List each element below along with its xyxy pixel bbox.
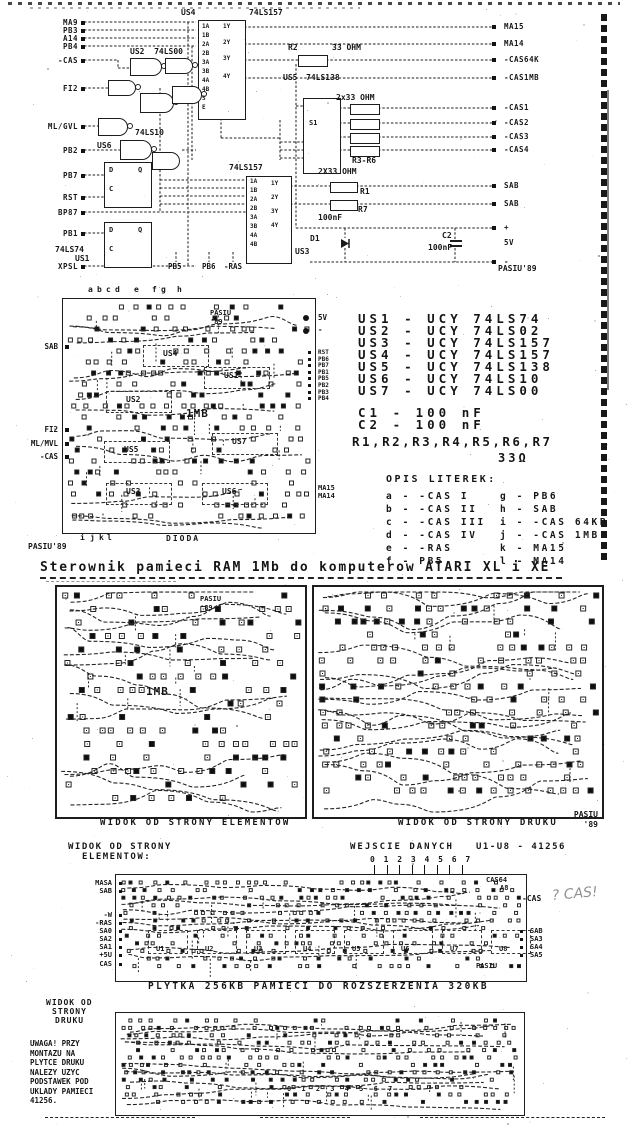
schematic-right-pin — [492, 226, 496, 230]
us4-pin-label: 1A — [202, 24, 209, 30]
gate-inverter-bubble — [135, 84, 141, 90]
schematic-left-pin — [81, 265, 85, 269]
scan-speckle — [290, 991, 291, 992]
legend-left-item: e - -RAS — [386, 544, 453, 554]
memory-edge-pin — [119, 930, 122, 933]
schematic-right-label: -CAS1 — [504, 104, 529, 112]
scan-speckle — [60, 27, 61, 28]
ff-pin-c: C — [109, 186, 113, 193]
us4-pin-label: 4A — [202, 78, 209, 84]
schematic-left-pin — [81, 87, 85, 91]
schematic-right-label: + — [504, 224, 509, 232]
memory-left-label: MASA — [95, 880, 112, 887]
schematic-left-pin — [81, 21, 85, 25]
memory-left-label: SA0 — [99, 928, 112, 935]
schematic-right-pin — [492, 106, 496, 110]
schematic-right-label: MA14 — [504, 40, 524, 48]
memory-data-stub — [412, 865, 413, 874]
scan-speckle — [524, 1109, 525, 1110]
scan-speckle — [597, 800, 598, 801]
schematic-right-label: - — [504, 258, 509, 266]
scan-speckle — [16, 425, 17, 426]
pcb-pads — [314, 587, 602, 817]
board1-dioda-label: DIODA — [166, 535, 200, 543]
schematic-right-pin — [492, 260, 496, 264]
scan-speckle — [327, 294, 328, 295]
scan-speckle — [463, 245, 464, 246]
us4-pin-label: 4B — [202, 87, 209, 93]
schematic-left-label: PB1 — [63, 230, 78, 238]
schematic-left-pin — [81, 211, 85, 215]
scan-speckle — [128, 310, 130, 312]
memory-right-label: SA5 — [530, 952, 543, 959]
r36-label: R3-R6 — [352, 157, 376, 165]
board1-edge-pin — [308, 391, 311, 394]
logic-gate — [152, 152, 180, 170]
schematic-bottom-pin-label: -RAS — [224, 263, 242, 271]
scan-speckle — [469, 697, 471, 699]
bottom-dash — [45, 1117, 195, 1118]
us3-pin-label: 3B — [250, 224, 257, 230]
bottom-note-line: PLYTCE DRUKU — [30, 1059, 84, 1067]
legend-right-item: l - MA14 — [500, 557, 567, 567]
memory-edge-pin — [119, 938, 122, 941]
board1-top-letter: b — [97, 286, 102, 294]
page-title: Sterownik pamieci RAM 1Mb do komputerow … — [40, 561, 550, 574]
scan-speckle — [232, 903, 233, 904]
scan-speckle — [488, 504, 489, 505]
us4-name: US4 — [181, 9, 195, 17]
solder-side-board — [115, 1012, 525, 1116]
scan-speckle — [280, 89, 281, 90]
scan-speckle — [144, 196, 145, 197]
schematic-left-pin — [81, 37, 85, 41]
viewL-size-label: 1MB — [146, 686, 169, 697]
viewR-caption: WIDOK OD STRONY DRUKU — [398, 819, 558, 828]
scan-speckle — [626, 1058, 627, 1059]
r36-value: 2x33 OHM — [336, 94, 375, 102]
schematic-left-label: PB7 — [63, 172, 78, 180]
scan-speckle — [367, 581, 368, 582]
scan-speckle — [272, 1107, 273, 1108]
schematic-bottom-pin-label: PB6 — [202, 263, 216, 271]
memory-data-stub — [387, 865, 388, 874]
us3-pin-label: 4A — [250, 233, 257, 239]
board1-ic-outline — [104, 441, 170, 463]
memory-left-label: -W — [104, 912, 112, 919]
scan-speckle — [470, 454, 471, 455]
board1-signature: PASIU'89 — [28, 543, 67, 551]
scan-speckle — [480, 886, 481, 887]
ff-pin-d: D — [109, 227, 113, 234]
schematic-bottom-pin-label: PB5 — [168, 263, 182, 271]
parts-res-value: 33Ω — [498, 452, 529, 464]
scan-speckle — [587, 992, 589, 994]
memory-chip-outline — [491, 930, 531, 954]
scan-speckle — [402, 574, 403, 575]
bottom-note-line: UKLADY PAMIECI — [30, 1088, 93, 1096]
us3-pin-label: 1A — [250, 179, 257, 185]
bottom-note-line: MONTAZU NA — [30, 1050, 75, 1058]
scan-speckle — [499, 937, 500, 938]
memory-left-label: SA2 — [99, 936, 112, 943]
board1-bottom-letter: k — [99, 534, 104, 542]
scan-speckle — [458, 790, 460, 792]
board1-top-letter: e — [134, 286, 139, 294]
scan-speckle — [228, 815, 229, 816]
scan-speckle — [373, 528, 374, 529]
board1-ic-outline — [212, 433, 278, 455]
pcb-view-solder-side — [312, 585, 604, 819]
r17-value: 2X33 OHM — [318, 168, 357, 176]
board1-inner-signature: PASIU '89 — [210, 309, 244, 327]
board1-edge-pin — [308, 397, 311, 400]
bottom-view-label1: WIDOK OD — [46, 999, 93, 1007]
c2-label: C2 — [442, 232, 452, 240]
schematic-area: US4 74LS157 74LS157 US3 US5 74LS138 S1 U… — [0, 0, 632, 292]
scan-speckle — [543, 1083, 544, 1084]
us4-part: 74LS157 — [249, 9, 283, 17]
title-underline — [40, 577, 562, 579]
board1-right-label: - — [318, 326, 323, 334]
bottom-note-line: PODSTAWEK POD — [30, 1078, 89, 1086]
memory-header-right: U1-U8 - 41256 — [476, 843, 566, 852]
c1-value: 100nF — [318, 214, 342, 222]
board1-right-label: MA15 — [318, 485, 335, 492]
scan-speckle — [336, 297, 337, 298]
board1-bottom-letter: l — [107, 534, 112, 542]
board1-right-label: MA14 — [318, 493, 335, 500]
scan-speckle — [160, 838, 161, 839]
schematic-left-label: FI2 — [63, 85, 78, 93]
scan-speckle — [394, 287, 395, 288]
scan-speckle — [623, 761, 624, 762]
us3-pin-label: 2B — [250, 206, 257, 212]
schematic-right-label: 5V — [504, 239, 514, 247]
memory-chip-outline — [344, 930, 384, 954]
bottom-view-label2: STRONY — [52, 1008, 87, 1016]
scan-speckle — [428, 346, 429, 347]
schematic-right-label: -CAS64K — [504, 56, 539, 64]
scan-speckle — [548, 318, 549, 319]
scan-speckle — [327, 102, 329, 104]
us4-pin-label: 3A — [202, 60, 209, 66]
d1-label: D1 — [310, 235, 320, 243]
scan-speckle — [160, 1109, 161, 1110]
scan-speckle — [502, 760, 504, 762]
board1-edge-pin — [308, 371, 311, 374]
board1-left-label: -CAS — [40, 453, 58, 461]
scan-speckle — [389, 294, 390, 295]
scan-speckle — [33, 104, 34, 105]
legend-left-item: b - -CAS II — [386, 505, 478, 515]
schematic-right-pin — [492, 184, 496, 188]
memory-right-label: SA4 — [530, 944, 543, 951]
memory-caption: PLYTKA 256KB PAMIECI DO ROZSZERZENIA 320… — [148, 982, 489, 992]
r2-label: R2 — [288, 44, 298, 52]
us3-pin-label: 3A — [250, 215, 257, 221]
board1-top-letter: a — [88, 286, 93, 294]
pcb-pads — [116, 875, 526, 981]
schematic-left-pin — [81, 125, 85, 129]
scan-speckle — [136, 401, 137, 402]
board1-top-letter: d — [115, 286, 120, 294]
logic-gate — [140, 93, 174, 113]
scan-speckle — [565, 854, 566, 855]
board1-top-letter: c — [106, 286, 111, 294]
ff-pin-q: Q — [138, 227, 142, 234]
scan-speckle — [608, 459, 609, 460]
memory-edge-pin — [119, 882, 122, 885]
board1-left-label: SAB — [44, 343, 58, 351]
us3-name: US3 — [295, 248, 309, 256]
logic-gate — [130, 58, 162, 76]
memory-edge-pin — [520, 954, 523, 957]
logic-gate — [120, 140, 152, 160]
board1-power-pad — [303, 328, 309, 334]
memory-chip-outline — [393, 930, 433, 954]
bottom-note-line: NALEZY UZYC — [30, 1069, 80, 1077]
us3-pin-label: 1Y — [271, 181, 278, 187]
scan-speckle — [61, 907, 62, 908]
schematic-right-label: -CAS1MB — [504, 74, 539, 82]
scan-speckle — [12, 1061, 13, 1062]
us5-part: 74LS138 — [306, 74, 340, 82]
scan-speckle — [26, 981, 27, 982]
board1-ic-outline — [106, 483, 172, 505]
schematic-left-label: -CAS — [58, 57, 78, 65]
scan-speckle — [293, 294, 294, 295]
scan-speckle — [414, 1006, 415, 1007]
scan-speckle — [478, 812, 479, 813]
us4-pin-label: 1B — [202, 33, 209, 39]
schematic-left-label: BP87 — [58, 209, 78, 217]
scan-speckle — [294, 524, 295, 525]
scan-speckle — [573, 781, 574, 782]
logic-gate — [165, 58, 193, 74]
scan-speckle — [318, 450, 319, 451]
memory-chip-outline — [442, 930, 482, 954]
us3-part: 74LS157 — [229, 164, 263, 172]
scan-speckle — [529, 1121, 531, 1123]
scan-speckle — [12, 781, 13, 782]
memory-edge-pin — [119, 914, 122, 917]
scan-speckle — [473, 1078, 474, 1079]
scan-speckle — [595, 370, 596, 371]
logic-gate — [108, 80, 136, 96]
bottom-digits: 0 1 2 3 4 5 6 7 — [287, 1086, 395, 1093]
scan-speckle — [255, 705, 256, 706]
scan-speckle — [236, 725, 238, 727]
logic-gate — [98, 118, 128, 136]
scan-speckle — [7, 776, 8, 777]
memory-header-center: WEJSCIE DANYCH — [350, 843, 454, 852]
memory-left-label: -RAS — [95, 920, 112, 927]
schematic-left-pin — [81, 29, 85, 33]
schematic-signature: PASIU'89 — [498, 265, 537, 273]
memory-inner-signature: PASIU — [476, 963, 497, 970]
schematic-right-pin — [492, 148, 496, 152]
scan-speckle — [332, 594, 333, 595]
memory-left-label: SAB — [99, 888, 112, 895]
scan-speckle — [70, 863, 71, 864]
us5-name: US5 — [283, 74, 297, 82]
schematic-right-pin — [492, 42, 496, 46]
memory-header-digits: 0 1 2 3 4 5 6 7 — [370, 856, 472, 864]
scan-speckle — [594, 320, 596, 322]
schematic-left-pin — [81, 232, 85, 236]
us4-pin-label: 3Y — [223, 56, 230, 62]
scan-speckle — [626, 404, 627, 405]
schematic-right-label: SAB — [504, 200, 519, 208]
board1-edge-pin — [308, 358, 311, 361]
memory-chip-outline — [197, 930, 237, 954]
scan-speckle — [604, 744, 605, 745]
schematic-left-pin — [81, 196, 85, 200]
schematic-left-pin — [81, 59, 85, 63]
c2-value: 100nF — [428, 244, 452, 252]
scan-speckle — [622, 580, 623, 581]
schematic-left-label: PB4 — [63, 43, 78, 51]
legend-right-item: h - SAB — [500, 505, 558, 515]
gate-inverter-bubble — [192, 62, 198, 68]
scan-speckle — [244, 39, 245, 40]
scan-speckle — [63, 771, 64, 772]
scan-speckle — [507, 610, 508, 611]
memory-left-label: +5U — [99, 952, 112, 959]
legend-left-item: a - -CAS I — [386, 492, 469, 502]
board1-right-label: 5V — [318, 314, 327, 322]
memory-edge-pin — [119, 963, 122, 966]
scan-speckle — [394, 1117, 395, 1118]
board1-power-pad — [303, 315, 309, 321]
scan-speckle — [423, 413, 424, 414]
us1-part: 74LS74 — [55, 246, 84, 254]
scan-speckle — [405, 508, 407, 510]
resistor-r2 — [298, 55, 328, 67]
memory-header-left-line1: WIDOK OD STRONY — [68, 843, 172, 852]
scan-speckle — [94, 835, 95, 836]
us4-pin-label: S — [202, 96, 206, 102]
memory-expansion-board — [115, 874, 527, 982]
board1-edge-pin — [308, 384, 311, 387]
schematic-right-pin — [492, 25, 496, 29]
schematic-right-pin — [492, 135, 496, 139]
scan-speckle — [56, 1124, 57, 1125]
bottom-view-label3: DRUKU — [55, 1017, 84, 1025]
legend-left-item: c - -CAS III — [386, 518, 486, 528]
resistor-r1 — [330, 182, 358, 193]
scan-speckle — [27, 535, 28, 536]
us4-pin-label: 1Y — [223, 24, 230, 30]
scan-speckle — [484, 513, 485, 514]
board1-bottom-letter: j — [90, 534, 95, 542]
pcb-pads — [116, 1013, 524, 1115]
memory-handwritten-note: ? CAS! — [551, 884, 598, 904]
board1-left-label: FI2 — [44, 426, 58, 434]
scan-speckle — [559, 911, 560, 912]
scan-speckle — [463, 334, 464, 335]
board1-top-letter: g — [161, 286, 166, 294]
scan-speckle — [256, 91, 257, 92]
scan-speckle — [503, 482, 504, 483]
us3-pin-label: 2Y — [271, 195, 278, 201]
schematic-left-pin — [81, 174, 85, 178]
scan-speckle — [179, 1032, 180, 1033]
board1-edge-pin — [65, 455, 69, 459]
us3-pin-label: 4B — [250, 242, 257, 248]
schematic-right-label: MA15 — [504, 23, 524, 31]
scan-speckle — [341, 757, 342, 758]
schematic-right-pin — [492, 76, 496, 80]
schematic-right-label: -CAS2 — [504, 119, 529, 127]
schematic-left-pin — [81, 149, 85, 153]
bottom-note-line: UWAGA! PRZY — [30, 1040, 80, 1048]
schematic-left-label: PB2 — [63, 147, 78, 155]
scan-speckle — [567, 1028, 568, 1029]
resistor-r3 — [350, 104, 380, 115]
scan-speckle — [515, 13, 517, 15]
us3-pin-label: 2A — [250, 197, 257, 203]
memory-edge-pin — [119, 890, 122, 893]
scan-speckle — [65, 598, 67, 600]
legend-right-item: i - -CAS 64KB — [500, 518, 608, 528]
memory-left-label: SA1 — [99, 944, 112, 951]
memory-chip-outline — [246, 930, 286, 954]
scan-speckle — [27, 439, 28, 440]
scan-speckle — [318, 351, 319, 352]
scan-speckle — [491, 306, 492, 307]
scan-speckle — [356, 975, 357, 976]
parts-res-line: R1,R2,R3,R4,R5,R6,R7 — [352, 436, 553, 449]
scan-speckle — [11, 955, 12, 956]
scan-speckle — [542, 419, 543, 420]
legend-right-item: j - -CAS 1MB — [500, 531, 600, 541]
memory-topright2: A8 — [500, 885, 508, 892]
scan-speckle — [133, 385, 134, 386]
scan-speckle — [363, 913, 364, 914]
scan-speckle — [315, 278, 316, 279]
memory-edge-pin — [119, 922, 122, 925]
bottom-dash — [260, 1117, 350, 1118]
scan-speckle — [15, 502, 16, 503]
schematic-left-label: ML/GVL — [48, 123, 78, 131]
memory-data-stub — [374, 865, 375, 874]
resistor-r5 — [350, 133, 380, 144]
scan-speckle — [112, 969, 113, 970]
us3-pin-label: 1B — [250, 188, 257, 194]
us4-pin-label: 2Y — [223, 40, 230, 46]
us6-label: 74LS10 — [135, 129, 164, 137]
bottom-dash — [420, 1117, 605, 1118]
memory-chip-outline — [148, 930, 188, 954]
scan-speckle — [484, 975, 485, 976]
scan-speckle — [607, 444, 608, 445]
ff-pin-c: C — [109, 246, 113, 253]
scan-speckle — [483, 554, 484, 555]
scan-speckle — [42, 878, 43, 879]
board1-left-label: ML/MVL — [31, 440, 58, 448]
scan-speckle — [56, 535, 57, 536]
scan-speckle — [291, 952, 292, 953]
memory-chip-outline — [295, 930, 335, 954]
board1-edge-pin — [308, 351, 311, 354]
scanned-magazine-page: US4 74LS157 74LS157 US3 US5 74LS138 S1 U… — [0, 0, 632, 1129]
ic-us5 — [303, 98, 341, 174]
memory-data-stub — [462, 865, 463, 874]
us4-pin-label: E — [202, 105, 206, 111]
memory-header-left-line2: ELEMENTOW: — [82, 853, 151, 862]
